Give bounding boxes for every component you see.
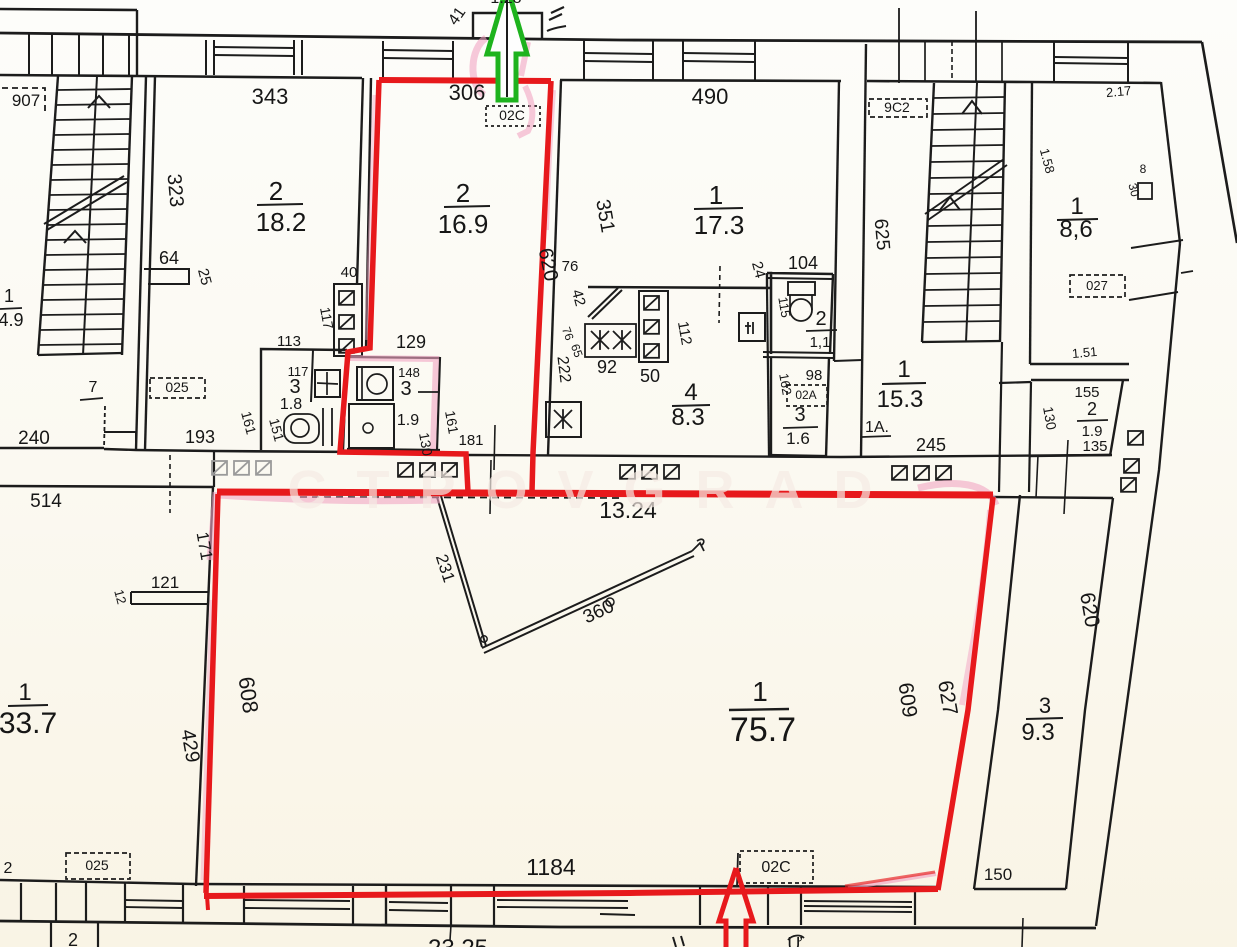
svg-text:92: 92 [597, 357, 617, 377]
svg-text:33.7: 33.7 [0, 707, 57, 740]
svg-text:150: 150 [984, 865, 1012, 884]
svg-text:181: 181 [458, 432, 483, 449]
svg-text:1: 1 [752, 676, 768, 707]
svg-text:2: 2 [815, 308, 826, 330]
svg-text:2: 2 [4, 860, 13, 877]
svg-text:907: 907 [12, 91, 40, 110]
svg-text:514: 514 [30, 491, 62, 512]
svg-text:98: 98 [806, 367, 823, 384]
svg-text:23.25: 23.25 [428, 935, 488, 947]
svg-text:148: 148 [398, 365, 420, 380]
svg-text:64: 64 [159, 248, 179, 268]
svg-text:40: 40 [341, 264, 358, 281]
svg-text:8,6: 8,6 [1059, 216, 1092, 243]
svg-text:2: 2 [456, 178, 470, 208]
svg-text:15.3: 15.3 [877, 386, 924, 413]
svg-text:1: 1 [18, 679, 31, 706]
svg-text:135: 135 [1082, 438, 1107, 455]
svg-text:608: 608 [233, 675, 263, 715]
svg-text:025: 025 [165, 379, 189, 395]
svg-text:1.28: 1.28 [490, 0, 521, 7]
svg-text:1.51: 1.51 [1071, 344, 1098, 361]
svg-text:17.3: 17.3 [694, 210, 745, 240]
svg-text:2: 2 [1087, 399, 1097, 419]
svg-text:625: 625 [870, 218, 894, 251]
svg-text:50: 50 [640, 366, 660, 386]
svg-text:76: 76 [562, 258, 579, 275]
svg-text:8: 8 [1140, 162, 1147, 176]
svg-text:1.6: 1.6 [786, 429, 810, 448]
svg-text:7: 7 [89, 379, 98, 396]
svg-text:245: 245 [916, 435, 946, 455]
svg-text:02C: 02C [761, 859, 790, 876]
svg-text:1184: 1184 [526, 854, 576, 880]
svg-text:3: 3 [289, 376, 300, 398]
svg-text:2: 2 [68, 930, 78, 947]
svg-text:323: 323 [163, 173, 188, 208]
svg-text:306: 306 [449, 80, 486, 105]
svg-text:2.17: 2.17 [1105, 83, 1132, 100]
svg-text:4: 4 [684, 379, 697, 406]
svg-text:343: 343 [252, 84, 289, 109]
svg-text:1.9: 1.9 [397, 412, 419, 429]
svg-text:025: 025 [85, 857, 109, 873]
svg-text:9C2: 9C2 [884, 99, 910, 115]
svg-text:1: 1 [4, 286, 14, 306]
svg-text:1: 1 [897, 356, 910, 383]
svg-text:104: 104 [788, 253, 818, 273]
svg-text:609: 609 [894, 681, 922, 719]
svg-text:121: 121 [151, 573, 179, 592]
svg-text:3: 3 [1039, 693, 1051, 718]
svg-text:240: 240 [18, 428, 50, 449]
svg-text:9.3: 9.3 [1021, 719, 1054, 746]
svg-text:193: 193 [185, 427, 215, 447]
svg-text:490: 490 [692, 84, 729, 109]
svg-text:16.9: 16.9 [438, 209, 489, 239]
svg-text:222: 222 [553, 355, 573, 384]
svg-text:1A.: 1A. [865, 419, 889, 436]
svg-text:027: 027 [1086, 278, 1108, 293]
svg-text:4.9: 4.9 [0, 310, 24, 330]
svg-text:8.3: 8.3 [671, 404, 704, 431]
svg-text:02A: 02A [795, 388, 816, 402]
svg-text:1.8: 1.8 [280, 396, 302, 413]
svg-text:2: 2 [269, 176, 283, 206]
svg-text:02C: 02C [499, 107, 525, 123]
svg-text:117: 117 [288, 364, 309, 379]
svg-text:3: 3 [400, 378, 411, 400]
svg-text:75.7: 75.7 [730, 711, 796, 749]
svg-text:3: 3 [794, 404, 805, 426]
svg-text:1,1: 1,1 [810, 334, 831, 351]
svg-text:18.2: 18.2 [256, 207, 307, 237]
svg-text:113: 113 [277, 333, 301, 350]
svg-text:155: 155 [1074, 384, 1099, 401]
svg-text:1: 1 [709, 180, 723, 210]
svg-text:CTPOVGRAD: CTPOVGRAD [287, 460, 902, 520]
svg-text:129: 129 [396, 332, 426, 352]
